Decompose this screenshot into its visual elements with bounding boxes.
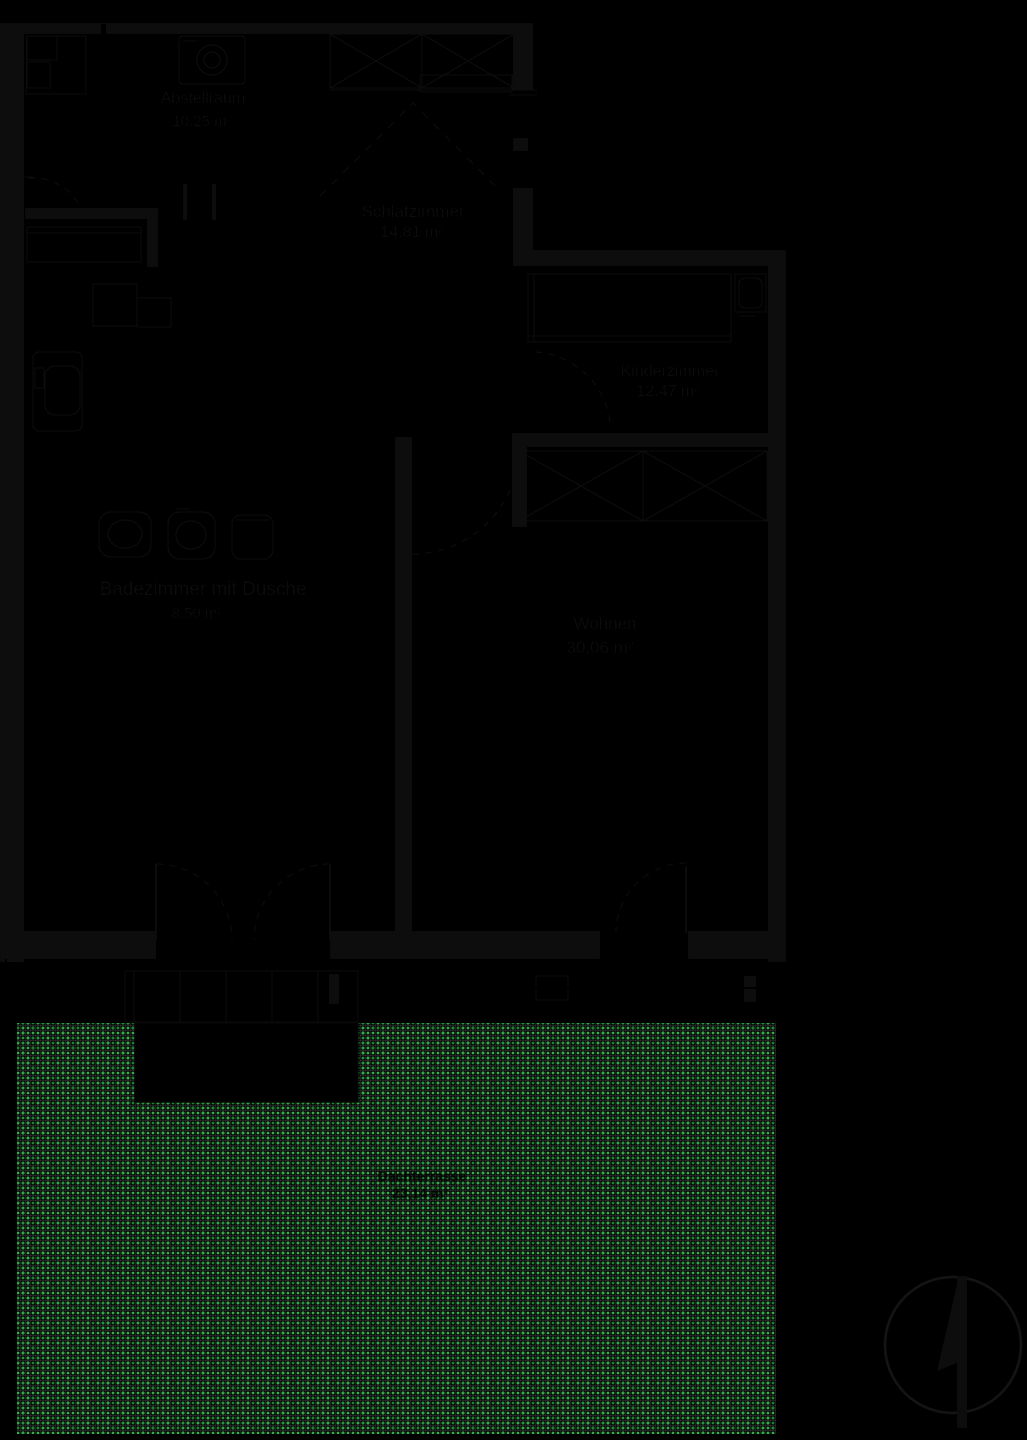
svg-text:Schlafzimmer: Schlafzimmer xyxy=(362,202,465,221)
svg-text:Kinderzimmer: Kinderzimmer xyxy=(621,363,720,380)
svg-text:Dachterrasse: Dachterrasse xyxy=(378,1168,467,1184)
svg-text:Badezimmer mit Dusche: Badezimmer mit Dusche xyxy=(100,579,307,600)
svg-text:14,81 m²: 14,81 m² xyxy=(380,224,444,241)
svg-text:12,47 m²: 12,47 m² xyxy=(636,383,700,400)
svg-text:23,14 m²: 23,14 m² xyxy=(392,1185,448,1201)
svg-text:Wohnen: Wohnen xyxy=(573,614,636,633)
svg-text:Abstellraum: Abstellraum xyxy=(161,90,245,107)
svg-text:30,06 m²: 30,06 m² xyxy=(566,638,633,657)
svg-text:8,50 m²: 8,50 m² xyxy=(172,605,223,622)
svg-text:10,25 m²: 10,25 m² xyxy=(172,113,231,130)
